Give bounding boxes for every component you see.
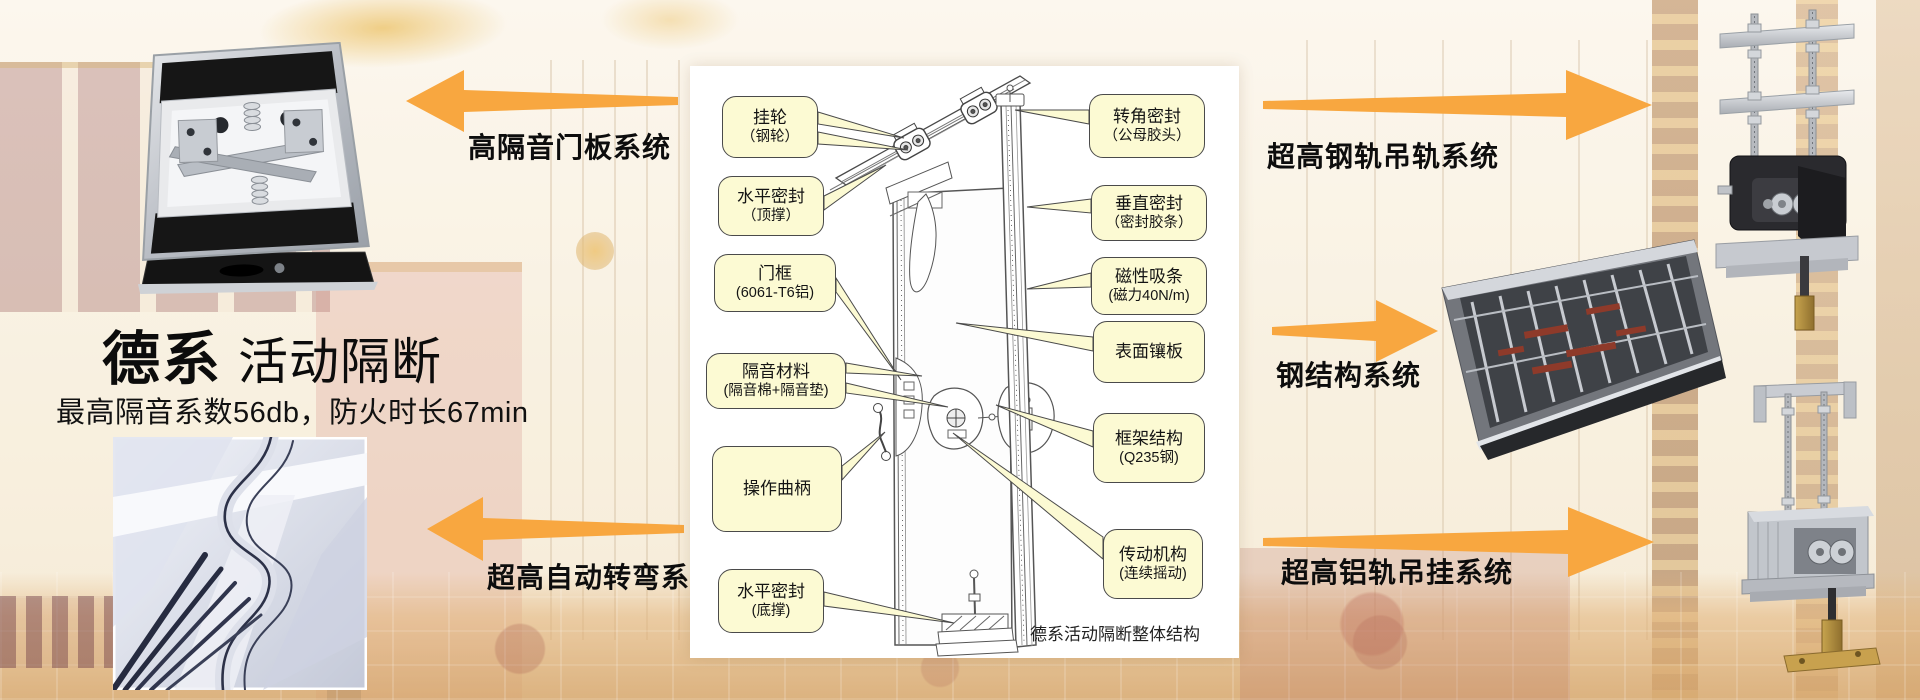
steel-structure-photo (1436, 236, 1726, 460)
label-auto-turning-system: 超高自动转弯系统 (487, 556, 719, 596)
label-aluminum-rail-system: 超高铝轨吊挂系统 (1281, 551, 1513, 591)
page-title: 德系 活动隔断 (102, 312, 562, 396)
label-steel-structure-system: 钢结构系统 (1276, 354, 1421, 394)
steel-rail-hanger-photo (1712, 8, 1862, 333)
brand-title: 德系 (102, 312, 222, 396)
callout-sound-insulation: 隔音材料 (隔音棉+隔音垫) (706, 353, 846, 409)
product-title: 活动隔断 (238, 322, 442, 394)
curved-track-photo (113, 437, 367, 690)
callout-operating-crank: 操作曲柄 (712, 446, 842, 532)
callout-transmission-mechanism: 传动机构 (连续摇动) (1103, 529, 1203, 599)
diagram-caption: 德系活动隔断整体结构 (1030, 620, 1200, 645)
callout-corner-seal: 转角密封 （公母胶头） (1089, 94, 1205, 158)
callout-frame-structure: 框架结构 (Q235钢) (1093, 413, 1205, 483)
label-steel-rail-system: 超高钢轨吊轨系统 (1267, 135, 1499, 175)
slide-canvas: 德系 活动隔断 最高隔音系数56db，防火时长67min 高隔音门板系统 (0, 0, 1920, 700)
callout-horizontal-seal-top: 水平密封 （顶撑） (718, 176, 824, 236)
callout-vertical-seal: 垂直密封 （密封胶条） (1091, 185, 1207, 241)
callout-hanging-wheel: 挂轮 （钢轮） (722, 96, 818, 158)
callout-door-frame: 门框 (6061-T6铝) (714, 254, 836, 312)
arrow-auto-turning-icon (427, 494, 684, 564)
aluminum-rail-hanger-photo (1736, 380, 1881, 680)
subtitle-specs: 最高隔音系数56db，防火时长67min (56, 389, 529, 431)
arrow-steel-rail-icon (1263, 68, 1652, 142)
callout-surface-panel: 表面镶板 (1093, 321, 1205, 383)
diagram-panel: 挂轮 （钢轮） 水平密封 （顶撑） 门框 (6061-T6铝) 隔音材料 (隔音… (690, 66, 1239, 658)
door-panel-mechanism-photo (118, 42, 388, 297)
arrow-door-panel-icon (406, 68, 678, 134)
callout-magnetic-strip: 磁性吸条 (磁力40N/m) (1091, 257, 1207, 315)
callout-horizontal-seal-bottom: 水平密封 (底撑) (718, 569, 824, 633)
label-door-panel-system: 高隔音门板系统 (468, 126, 671, 166)
